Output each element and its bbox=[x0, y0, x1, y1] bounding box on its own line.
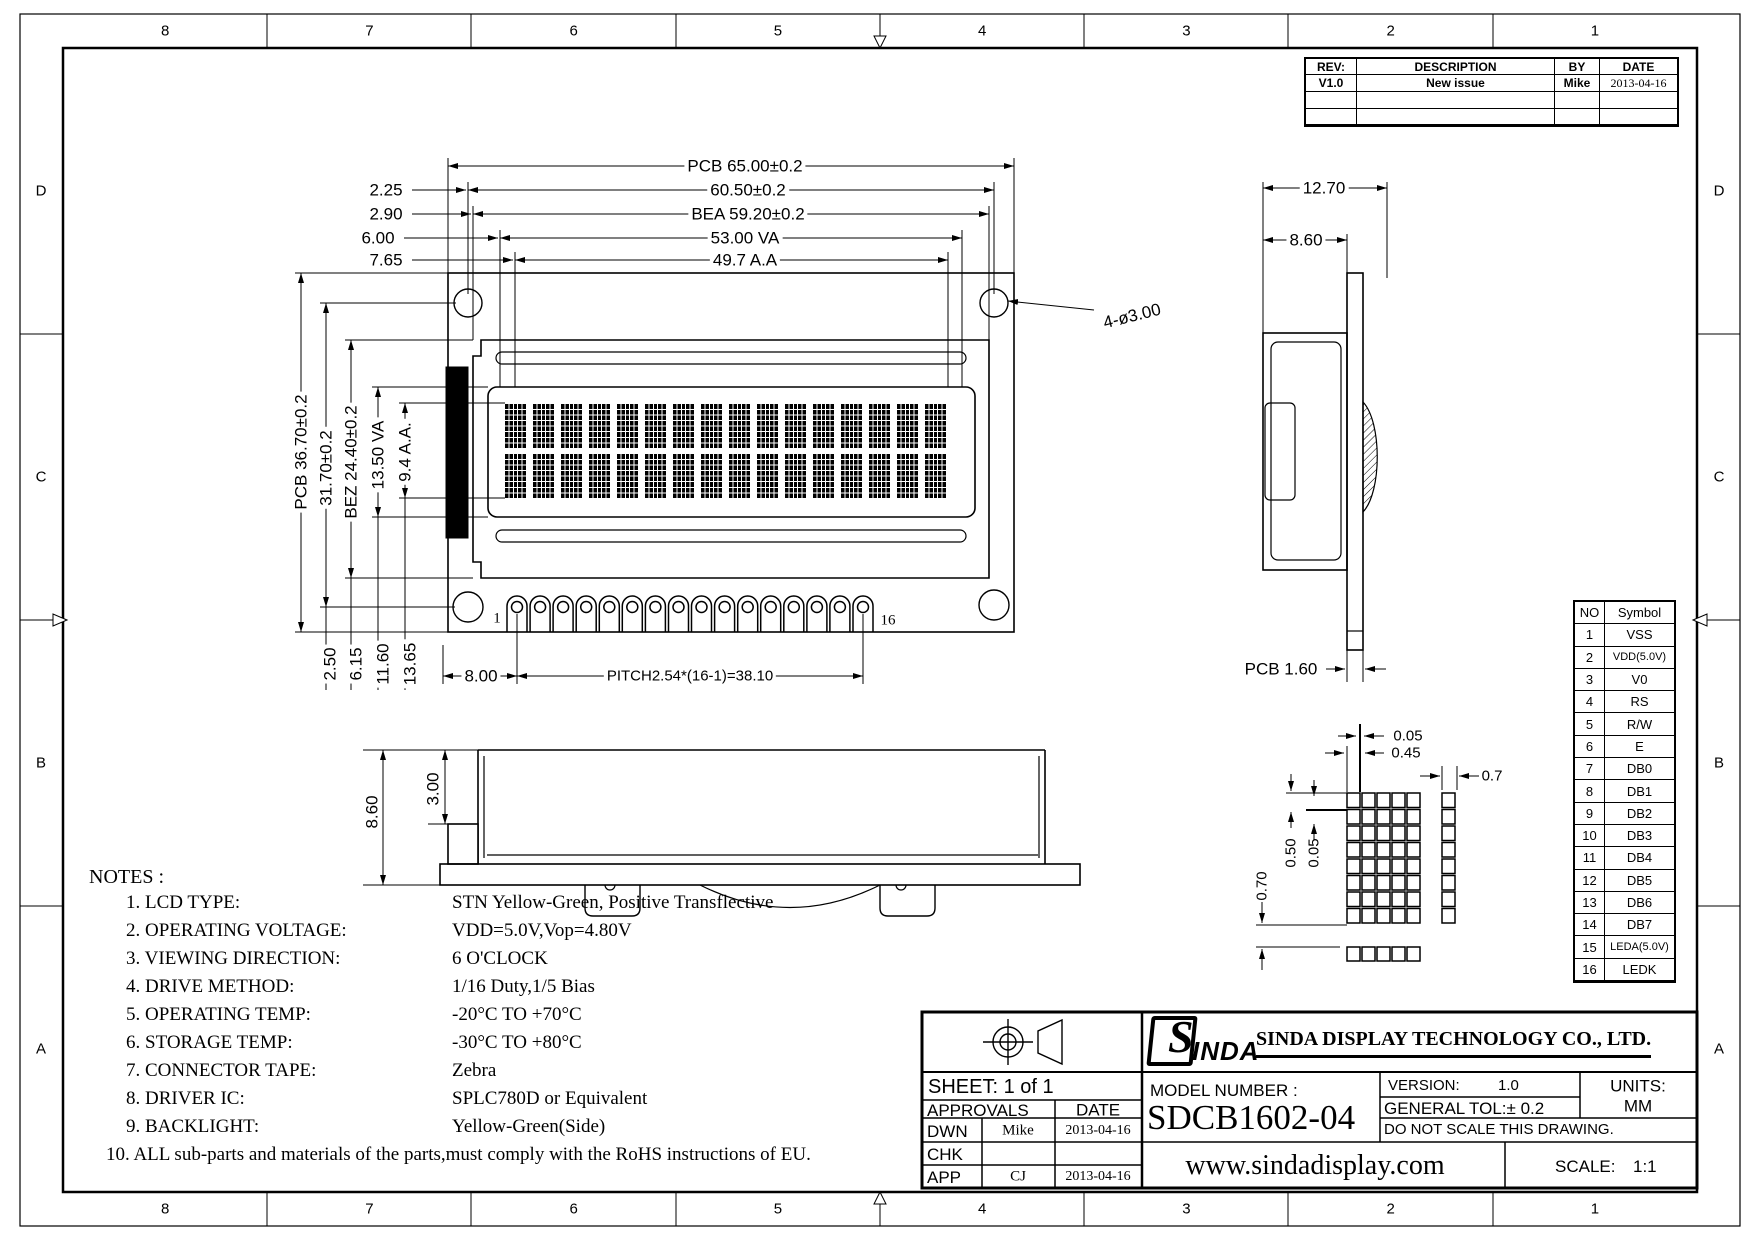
mount-hole-br bbox=[979, 590, 1009, 620]
zone-right-B: B bbox=[1714, 756, 1724, 771]
dot-cell bbox=[1392, 810, 1405, 825]
side-pcb bbox=[1347, 273, 1363, 650]
char-block bbox=[897, 403, 919, 448]
zone-top-6: 6 bbox=[569, 24, 577, 39]
dim-offset-1365: 13.65 bbox=[402, 640, 419, 689]
zone-top-8: 8 bbox=[161, 24, 169, 39]
model-number-label: MODEL NUMBER : bbox=[1150, 1082, 1298, 1099]
char-block bbox=[673, 403, 695, 448]
dot-cell bbox=[1442, 810, 1455, 825]
pin-hole bbox=[765, 602, 776, 613]
pin-hole bbox=[581, 602, 592, 613]
dot-cell bbox=[1407, 793, 1420, 808]
dot-cell bbox=[1407, 843, 1420, 858]
sinda-logo-inda: INDA bbox=[1192, 1036, 1260, 1067]
pin-hole bbox=[834, 602, 845, 613]
dot-cell bbox=[1392, 793, 1405, 808]
dot-cell bbox=[1362, 843, 1375, 858]
app-name: CJ bbox=[1010, 1170, 1026, 1185]
dim-offset-1160: 11.60 bbox=[375, 640, 392, 687]
dot-cell bbox=[1347, 793, 1360, 808]
pin-no: 15 bbox=[1575, 936, 1605, 958]
dot-cell bbox=[1377, 892, 1390, 907]
pin-hole bbox=[558, 602, 569, 613]
pin-no: 3 bbox=[1575, 669, 1605, 691]
dot-cell bbox=[1347, 810, 1360, 825]
pin-no: 12 bbox=[1575, 870, 1605, 892]
dim-dot-col: 0.7 bbox=[1482, 769, 1503, 784]
zone-right-D: D bbox=[1714, 184, 1725, 199]
dot-cell bbox=[1392, 843, 1405, 858]
pin-hole bbox=[604, 602, 615, 613]
zone-left-B: B bbox=[36, 756, 46, 771]
approvals-label: APPROVALS bbox=[927, 1102, 1029, 1119]
pin-hole bbox=[788, 602, 799, 613]
rev-value: V1.0 bbox=[1306, 75, 1357, 92]
pin-symbol: RS bbox=[1605, 691, 1674, 713]
bottom-pcb bbox=[440, 864, 1080, 885]
dot-cell bbox=[1377, 843, 1390, 858]
description-value: New issue bbox=[1357, 75, 1555, 92]
website: www.sindadisplay.com bbox=[1185, 1152, 1444, 1180]
revision-table: REV: DESCRIPTION BY DATE V1.0 New issue … bbox=[1304, 57, 1679, 127]
dim-offset-765: 7.65 bbox=[369, 252, 402, 269]
dot-cell bbox=[1377, 810, 1390, 825]
note-label: 7. CONNECTOR TAPE: bbox=[126, 1061, 316, 1080]
pin-symbol: V0 bbox=[1605, 669, 1674, 691]
units-label: UNITS: bbox=[1610, 1078, 1666, 1095]
mount-hole-bl bbox=[453, 592, 483, 622]
note-value: Yellow-Green(Side) bbox=[452, 1117, 605, 1136]
char-block bbox=[841, 403, 863, 448]
scale-label: SCALE: bbox=[1555, 1158, 1615, 1175]
note-label: 1. LCD TYPE: bbox=[126, 893, 240, 912]
zone-left-D: D bbox=[36, 184, 47, 199]
zone-right-A: A bbox=[1714, 1042, 1724, 1057]
zone-right-C: C bbox=[1714, 470, 1725, 485]
zone-bottom-6: 6 bbox=[569, 1202, 577, 1217]
pin-symbol: DB7 bbox=[1605, 914, 1674, 936]
note-value: STN Yellow-Green, Positive Transflective bbox=[452, 893, 773, 912]
pin-no: 8 bbox=[1575, 780, 1605, 802]
char-block bbox=[561, 403, 583, 448]
pin-no: 9 bbox=[1575, 803, 1605, 825]
pin-no: 7 bbox=[1575, 758, 1605, 780]
dot-cell bbox=[1442, 793, 1455, 808]
pin-symbol: DB0 bbox=[1605, 758, 1674, 780]
dot-cell bbox=[1392, 909, 1405, 924]
note-label: 3. VIEWING DIRECTION: bbox=[126, 949, 340, 968]
dot-cell bbox=[1347, 843, 1360, 858]
date-value: 2013-04-16 bbox=[1600, 75, 1677, 92]
dot-cell bbox=[1442, 826, 1455, 841]
zone-bottom-4: 4 bbox=[978, 1202, 986, 1217]
char-block bbox=[617, 453, 639, 498]
dot-cell bbox=[1347, 826, 1360, 841]
dot-cell bbox=[1362, 876, 1375, 891]
dot-cell bbox=[1362, 909, 1375, 924]
noscale-note: DO NOT SCALE THIS DRAWING. bbox=[1384, 1122, 1614, 1137]
dim-aa-height: 9.4 A.A. bbox=[397, 419, 414, 485]
pin-hole bbox=[742, 602, 753, 613]
company-name: SINDA DISPLAY TECHNOLOGY CO., LTD. bbox=[1256, 1029, 1651, 1058]
pin-no: 2 bbox=[1575, 647, 1605, 669]
dim-offset-600: 6.00 bbox=[361, 230, 394, 247]
dim-pin-pitch: PITCH2.54*(16-1)=38.10 bbox=[604, 669, 776, 684]
zone-bottom-1: 1 bbox=[1591, 1202, 1599, 1217]
version-label: VERSION: bbox=[1388, 1078, 1460, 1093]
dot-cell bbox=[1377, 793, 1390, 808]
pin-symbol: R/W bbox=[1605, 713, 1674, 735]
pin-hole bbox=[719, 602, 730, 613]
char-block bbox=[813, 403, 835, 448]
pin-symbol: VDD(5.0V) bbox=[1605, 647, 1674, 669]
dim-offset-615: 6.15 bbox=[348, 644, 365, 683]
dot-cell bbox=[1362, 947, 1375, 961]
dot-cell bbox=[1407, 876, 1420, 891]
note-value: -30°C TO +80°C bbox=[452, 1033, 582, 1052]
dot-cell bbox=[1407, 909, 1420, 924]
dot-cell bbox=[1407, 826, 1420, 841]
char-block bbox=[617, 403, 639, 448]
note-label: 8. DRIVER IC: bbox=[126, 1089, 245, 1108]
pin-symbol: DB6 bbox=[1605, 892, 1674, 914]
char-block bbox=[925, 403, 947, 448]
note-label: 5. OPERATING TEMP: bbox=[126, 1005, 311, 1024]
zone-bottom-2: 2 bbox=[1386, 1202, 1394, 1217]
dot-cell bbox=[1392, 876, 1405, 891]
pin-no: 1 bbox=[1575, 624, 1605, 646]
pin-no: 14 bbox=[1575, 914, 1605, 936]
dim-bea-width: BEA 59.20±0.2 bbox=[688, 206, 807, 223]
dim-aa-width: 49.7 A.A bbox=[710, 252, 780, 269]
dim-side-width: 12.70 bbox=[1300, 180, 1349, 197]
dot-cell bbox=[1407, 947, 1420, 961]
description-header: DESCRIPTION bbox=[1357, 59, 1555, 75]
dot-cell bbox=[1407, 892, 1420, 907]
pin-hole bbox=[811, 602, 822, 613]
pin-no: 4 bbox=[1575, 691, 1605, 713]
note-value: 6 O'CLOCK bbox=[452, 949, 548, 968]
chk-label: CHK bbox=[927, 1146, 963, 1163]
dot-cell bbox=[1392, 859, 1405, 874]
dim-dot-gap-x: 0.05 bbox=[1393, 729, 1422, 744]
dim-va-width: 53.00 VA bbox=[708, 230, 783, 247]
char-block bbox=[589, 453, 611, 498]
zone-left-A: A bbox=[36, 1042, 46, 1057]
dim-pin-offset: 8.00 bbox=[461, 668, 500, 685]
dot-cell bbox=[1362, 892, 1375, 907]
pin-label-last: 16 bbox=[881, 614, 896, 629]
zone-top-5: 5 bbox=[774, 24, 782, 39]
char-block bbox=[533, 403, 555, 448]
char-block bbox=[673, 453, 695, 498]
by-value: Mike bbox=[1555, 75, 1600, 92]
dot-cell bbox=[1362, 793, 1375, 808]
dim-side-bezel: 8.60 bbox=[1286, 232, 1325, 249]
pin-symbol: DB5 bbox=[1605, 870, 1674, 892]
char-block bbox=[729, 453, 751, 498]
char-block bbox=[841, 453, 863, 498]
pin-no: 6 bbox=[1575, 736, 1605, 758]
model-number: SDCB1602-04 bbox=[1147, 1100, 1355, 1135]
bezel-slot-bottom bbox=[496, 530, 966, 542]
zone-bottom-8: 8 bbox=[161, 1202, 169, 1217]
sinda-logo-s: S bbox=[1168, 1010, 1194, 1063]
pin-no: 11 bbox=[1575, 847, 1605, 869]
zebra-strip bbox=[446, 367, 468, 538]
char-block bbox=[589, 403, 611, 448]
pin-hole bbox=[627, 602, 638, 613]
char-block bbox=[505, 453, 527, 498]
dim-dot-height: 0.50 bbox=[1284, 838, 1299, 867]
note-label: 9. BACKLIGHT: bbox=[126, 1117, 259, 1136]
zone-top-3: 3 bbox=[1182, 24, 1190, 39]
char-block bbox=[785, 403, 807, 448]
note-label: 2. OPERATING VOLTAGE: bbox=[126, 921, 347, 940]
pin-hole bbox=[650, 602, 661, 613]
tolerance-label: GENERAL TOL:± 0.2 bbox=[1384, 1100, 1544, 1117]
bezel-slot-top bbox=[496, 352, 966, 364]
char-block bbox=[785, 453, 807, 498]
char-block bbox=[757, 453, 779, 498]
engineering-drawing-sheet: 8765432187654321DCBADCBA PCB 65.00±0.2 2… bbox=[0, 0, 1755, 1241]
dot-cell bbox=[1407, 859, 1420, 874]
pin-label-first: 1 bbox=[493, 612, 501, 627]
char-block bbox=[925, 453, 947, 498]
dot-cell bbox=[1347, 876, 1360, 891]
dot-cell bbox=[1377, 826, 1390, 841]
dim-dot-width: 0.45 bbox=[1391, 746, 1420, 761]
dot-cell bbox=[1442, 892, 1455, 907]
pin-hole bbox=[512, 602, 523, 613]
pin-symbol: DB3 bbox=[1605, 825, 1674, 847]
dot-cell bbox=[1392, 826, 1405, 841]
dot-cell bbox=[1362, 826, 1375, 841]
pin-row bbox=[507, 596, 873, 632]
pin-symbol: DB1 bbox=[1605, 780, 1674, 802]
bottom-tab-right bbox=[880, 885, 935, 916]
zone-top-1: 1 bbox=[1591, 24, 1599, 39]
dim-dot-gap-y: 0.05 bbox=[1307, 838, 1322, 867]
dot-cell bbox=[1362, 810, 1375, 825]
pin-hole bbox=[535, 602, 546, 613]
char-block bbox=[729, 403, 751, 448]
dot-cell bbox=[1347, 947, 1360, 961]
pin-symbol: DB2 bbox=[1605, 803, 1674, 825]
dot-cell bbox=[1362, 859, 1375, 874]
version-value: 1.0 bbox=[1498, 1078, 1519, 1093]
pin-hole bbox=[696, 602, 707, 613]
dim-pcb-thick: PCB 1.60 bbox=[1245, 661, 1318, 678]
app-label: APP bbox=[927, 1169, 961, 1186]
pin-no: 10 bbox=[1575, 825, 1605, 847]
char-block bbox=[869, 453, 891, 498]
dot-cell bbox=[1392, 892, 1405, 907]
by-header: BY bbox=[1555, 59, 1600, 75]
pin-no-header: NO bbox=[1575, 602, 1605, 624]
note-value: VDD=5.0V,Vop=4.80V bbox=[452, 921, 632, 940]
pin-no: 5 bbox=[1575, 713, 1605, 735]
char-block bbox=[757, 403, 779, 448]
zone-bottom-3: 3 bbox=[1182, 1202, 1190, 1217]
dim-mount-height: 31.70±0.2 bbox=[318, 427, 335, 509]
pin-no: 16 bbox=[1575, 959, 1605, 981]
dwn-name: Mike bbox=[1002, 1124, 1034, 1139]
dot-cell bbox=[1407, 810, 1420, 825]
dim-pcb-width: PCB 65.00±0.2 bbox=[684, 158, 805, 175]
char-block bbox=[813, 453, 835, 498]
zone-left-C: C bbox=[36, 470, 47, 485]
dot-cell bbox=[1347, 909, 1360, 924]
dim-bottom-total: 8.60 bbox=[364, 792, 381, 831]
dim-va-height: 13.50 VA bbox=[370, 418, 387, 493]
projection-symbol-icon bbox=[983, 1019, 1062, 1065]
note-label: 10. ALL sub-parts and materials of the p… bbox=[106, 1145, 811, 1164]
pin-symbol-header: Symbol bbox=[1605, 602, 1674, 624]
bottom-connector bbox=[448, 824, 478, 864]
char-block bbox=[869, 403, 891, 448]
zone-bottom-5: 5 bbox=[774, 1202, 782, 1217]
note-value: -20°C TO +70°C bbox=[452, 1005, 582, 1024]
note-value: SPLC780D or Equivalent bbox=[452, 1089, 647, 1108]
pin-hole bbox=[673, 602, 684, 613]
dwn-label: DWN bbox=[927, 1123, 968, 1140]
zone-bottom-7: 7 bbox=[365, 1202, 373, 1217]
note-label: 6. STORAGE TEMP: bbox=[126, 1033, 293, 1052]
dot-cell bbox=[1442, 859, 1455, 874]
notes-title: NOTES : bbox=[89, 867, 164, 887]
dot-cell bbox=[1442, 876, 1455, 891]
app-date: 2013-04-16 bbox=[1065, 1170, 1130, 1184]
date-col-label: DATE bbox=[1076, 1102, 1120, 1119]
dim-offset-290: 2.90 bbox=[369, 206, 402, 223]
dim-mount-width: 60.50±0.2 bbox=[707, 182, 789, 199]
dot-cell bbox=[1442, 909, 1455, 924]
note-value: Zebra bbox=[452, 1061, 496, 1080]
side-frame bbox=[1263, 333, 1347, 570]
zone-top-4: 4 bbox=[978, 24, 986, 39]
dim-dot-row: 0.70 bbox=[1255, 871, 1270, 900]
dim-offset-250: 2.50 bbox=[322, 644, 339, 683]
dot-cell bbox=[1442, 843, 1455, 858]
units-value: MM bbox=[1624, 1098, 1652, 1115]
dim-bez-height: BEZ 24.40±0.2 bbox=[343, 402, 360, 521]
dot-cell bbox=[1377, 947, 1390, 961]
pin-symbol: LEDA(5.0V) bbox=[1605, 936, 1674, 958]
char-block bbox=[645, 453, 667, 498]
char-block bbox=[505, 403, 527, 448]
pin-symbol: E bbox=[1605, 736, 1674, 758]
scale-value: 1:1 bbox=[1633, 1158, 1657, 1175]
dwn-date: 2013-04-16 bbox=[1065, 1124, 1130, 1138]
pin-hole bbox=[858, 602, 869, 613]
dim-pcb-height: PCB 36.70±0.2 bbox=[293, 391, 310, 512]
dot-cell bbox=[1347, 892, 1360, 907]
side-view bbox=[1263, 182, 1387, 682]
pin-table: NOSymbol1VSS2VDD(5.0V)3V04RS5R/W6E7DB08D… bbox=[1573, 600, 1676, 983]
dot-cell bbox=[1377, 859, 1390, 874]
char-block bbox=[561, 453, 583, 498]
zone-top-2: 2 bbox=[1386, 24, 1394, 39]
char-block bbox=[701, 453, 723, 498]
sheet-label: SHEET: 1 of 1 bbox=[928, 1077, 1054, 1097]
char-block bbox=[533, 453, 555, 498]
dot-cell bbox=[1392, 947, 1405, 961]
dot-cell bbox=[1377, 876, 1390, 891]
dot-cell bbox=[1347, 859, 1360, 874]
pin-symbol: DB4 bbox=[1605, 847, 1674, 869]
zone-top-7: 7 bbox=[365, 24, 373, 39]
char-block bbox=[701, 403, 723, 448]
char-block bbox=[897, 453, 919, 498]
dot-cell bbox=[1377, 909, 1390, 924]
backlight-hatch bbox=[1363, 402, 1377, 512]
note-label: 4. DRIVE METHOD: bbox=[126, 977, 294, 996]
pin-no: 13 bbox=[1575, 892, 1605, 914]
dim-bottom-step: 3.00 bbox=[425, 769, 442, 808]
note-value: 1/16 Duty,1/5 Bias bbox=[452, 977, 595, 996]
pin-symbol: VSS bbox=[1605, 624, 1674, 646]
pin-symbol: LEDK bbox=[1605, 959, 1674, 981]
dim-offset-225: 2.25 bbox=[369, 182, 402, 199]
date-header: DATE bbox=[1600, 59, 1677, 75]
rev-header: REV: bbox=[1306, 59, 1357, 75]
char-block bbox=[645, 403, 667, 448]
